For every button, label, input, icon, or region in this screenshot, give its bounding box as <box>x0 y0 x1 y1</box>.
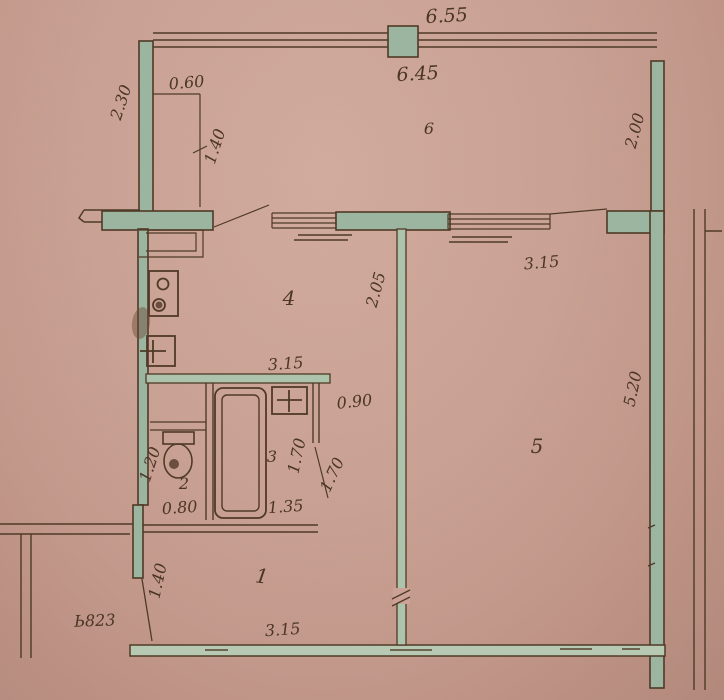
dim-bath-width: 1.35 <box>267 496 304 517</box>
paper-texture <box>0 0 724 700</box>
room-label-living: 5 <box>531 434 544 458</box>
dim-balcony-inner: 6.45 <box>396 62 439 86</box>
facade-pier-left <box>102 211 213 230</box>
balcony-wall-left <box>139 41 153 212</box>
wall-living-partition <box>397 229 406 645</box>
plan-note: Ь823 <box>73 610 116 630</box>
room-label-bath: 3 <box>267 447 277 466</box>
room-label-kitchen: 4 <box>282 286 296 310</box>
dim-bath-passage: 0.90 <box>336 390 373 413</box>
balcony-wall-right <box>651 61 664 212</box>
balcony-railing-post <box>388 26 418 57</box>
floor-plan-page: 6.55 6.45 6 2.30 2.00 0.60 1.40 2.05 4 3… <box>0 0 724 700</box>
wall-right <box>650 211 664 688</box>
dim-kitchen-width: 3.15 <box>267 353 304 374</box>
dim-wc-width: 0.80 <box>161 497 198 518</box>
wall-left-lower <box>133 505 143 578</box>
dim-balcony-closet-w: 0.60 <box>168 72 205 94</box>
dim-living-window: 3.15 <box>523 252 560 274</box>
floor-plan-svg: 6.55 6.45 6 2.30 2.00 0.60 1.40 2.05 4 3… <box>0 0 724 700</box>
room-label-balcony: 6 <box>424 119 434 138</box>
room-label-wc: 2 <box>178 474 189 493</box>
wall-kitchen-bottom <box>146 374 330 383</box>
dim-balcony-outer: 6.55 <box>425 4 468 28</box>
dim-hall-width: 3.15 <box>264 619 301 640</box>
facade-pier-center <box>336 212 450 230</box>
